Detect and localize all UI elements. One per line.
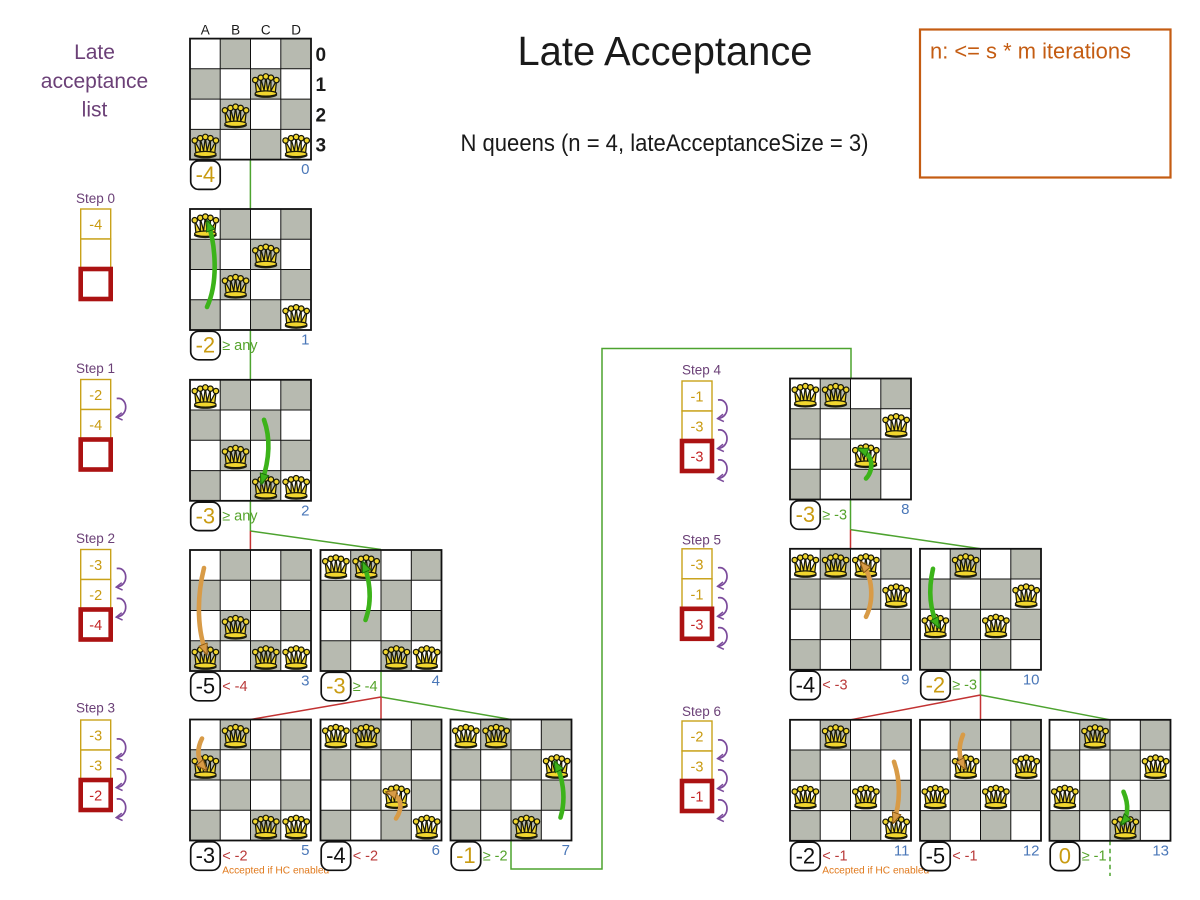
svg-text:< -1: < -1 — [952, 849, 977, 865]
svg-text:-3: -3 — [691, 760, 704, 776]
svg-text:Step 0: Step 0 — [76, 191, 115, 206]
svg-text:≥ any: ≥ any — [222, 338, 258, 354]
svg-text:B: B — [231, 23, 240, 38]
svg-text:-3: -3 — [89, 759, 102, 775]
svg-text:-4: -4 — [89, 418, 102, 434]
svg-text:n: <= s * m iterations: n: <= s * m iterations — [930, 39, 1131, 64]
svg-text:Step 3: Step 3 — [76, 701, 115, 716]
svg-text:10: 10 — [1023, 671, 1040, 688]
svg-text:-4: -4 — [196, 162, 216, 187]
svg-text:Accepted if HC enabled: Accepted if HC enabled — [822, 866, 929, 877]
svg-text:C: C — [261, 23, 271, 38]
svg-text:-2: -2 — [691, 730, 704, 746]
svg-text:-2: -2 — [89, 789, 102, 805]
svg-text:-3: -3 — [691, 450, 704, 466]
svg-text:-1: -1 — [456, 843, 476, 868]
svg-text:-3: -3 — [691, 420, 704, 436]
svg-text:Step 1: Step 1 — [76, 361, 115, 376]
svg-text:Accepted if HC enabled: Accepted if HC enabled — [222, 865, 329, 876]
svg-text:list: list — [82, 99, 108, 122]
svg-text:-2: -2 — [796, 843, 816, 868]
svg-text:Step 5: Step 5 — [682, 533, 721, 548]
svg-text:-4: -4 — [326, 843, 346, 868]
svg-text:4: 4 — [432, 673, 440, 690]
svg-text:-3: -3 — [89, 729, 102, 745]
svg-text:13: 13 — [1152, 842, 1169, 859]
svg-text:-3: -3 — [691, 557, 704, 573]
svg-text:0: 0 — [316, 45, 327, 66]
svg-text:≥ -3: ≥ -3 — [952, 678, 977, 694]
svg-text:< -2: < -2 — [353, 848, 378, 864]
svg-text:7: 7 — [562, 842, 570, 859]
svg-text:-1: -1 — [691, 390, 704, 406]
svg-text:5: 5 — [301, 842, 309, 859]
svg-text:9: 9 — [901, 671, 909, 688]
svg-text:-2: -2 — [926, 672, 946, 697]
svg-text:-5: -5 — [196, 674, 216, 699]
svg-text:≥ -4: ≥ -4 — [353, 679, 378, 695]
svg-text:N queens (n = 4, lateAcceptanc: N queens (n = 4, lateAcceptanceSize = 3) — [461, 130, 869, 157]
svg-text:-3: -3 — [89, 558, 102, 574]
svg-text:≥ any: ≥ any — [222, 509, 258, 525]
svg-text:< -2: < -2 — [222, 848, 247, 864]
svg-text:3: 3 — [316, 136, 327, 157]
svg-text:Step 6: Step 6 — [682, 704, 721, 719]
svg-text:-3: -3 — [196, 843, 216, 868]
svg-text:-1: -1 — [691, 587, 704, 603]
svg-text:D: D — [291, 23, 301, 38]
svg-text:-3: -3 — [326, 674, 346, 699]
svg-text:-2: -2 — [196, 333, 216, 358]
svg-text:Step 4: Step 4 — [682, 363, 722, 378]
svg-text:1: 1 — [301, 332, 309, 349]
svg-text:0: 0 — [301, 161, 309, 178]
svg-text:-1: -1 — [691, 790, 704, 806]
svg-text:A: A — [201, 23, 210, 38]
svg-text:-3: -3 — [796, 502, 816, 527]
svg-text:Step 2: Step 2 — [76, 531, 115, 546]
svg-text:Late: Late — [74, 41, 115, 64]
svg-text:-2: -2 — [89, 388, 102, 404]
svg-text:≥ -1: ≥ -1 — [1082, 849, 1107, 865]
svg-text:Late Acceptance: Late Acceptance — [518, 28, 813, 74]
svg-text:-4: -4 — [89, 218, 102, 234]
svg-text:12: 12 — [1023, 842, 1040, 859]
svg-text:2: 2 — [316, 105, 327, 126]
svg-text:-3: -3 — [691, 617, 704, 633]
svg-text:8: 8 — [901, 501, 909, 518]
svg-text:≥ -2: ≥ -2 — [483, 848, 508, 864]
svg-text:11: 11 — [894, 842, 910, 859]
svg-text:-4: -4 — [796, 672, 816, 697]
svg-text:-4: -4 — [89, 618, 102, 634]
svg-text:-2: -2 — [89, 588, 102, 604]
svg-text:< -3: < -3 — [822, 678, 847, 694]
svg-text:0: 0 — [1059, 843, 1071, 868]
svg-text:1: 1 — [316, 75, 327, 96]
svg-text:< -4: < -4 — [222, 679, 247, 695]
svg-text:-3: -3 — [196, 503, 216, 528]
svg-text:3: 3 — [301, 673, 309, 690]
svg-text:acceptance: acceptance — [41, 70, 148, 93]
svg-text:2: 2 — [301, 502, 309, 519]
svg-text:< -1: < -1 — [822, 849, 847, 865]
svg-text:≥ -3: ≥ -3 — [822, 507, 847, 523]
svg-text:6: 6 — [432, 842, 440, 859]
svg-text:-5: -5 — [926, 843, 946, 868]
